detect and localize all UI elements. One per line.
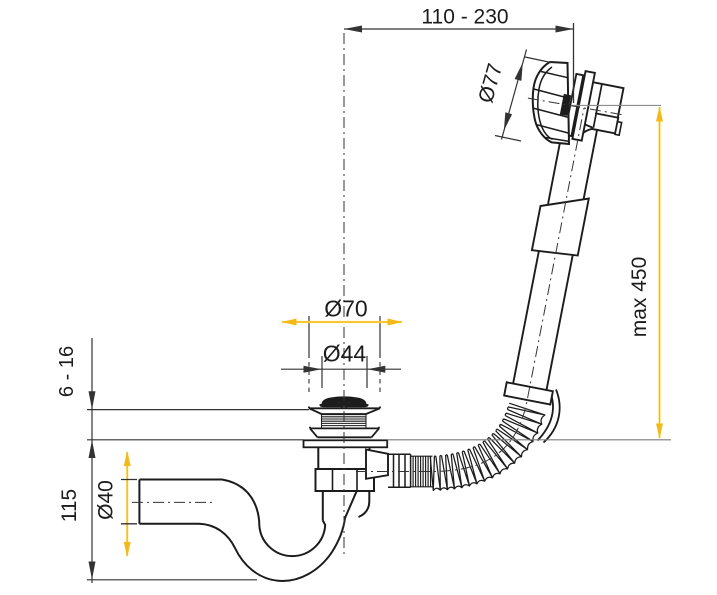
svg-text:Ø44: Ø44 (323, 341, 367, 367)
svg-text:110 - 230: 110 - 230 (421, 6, 508, 29)
svg-text:115: 115 (58, 489, 81, 522)
svg-text:Ø40: Ø40 (95, 480, 118, 520)
svg-text:6 - 16: 6 - 16 (56, 346, 78, 397)
svg-text:Ø70: Ø70 (324, 296, 367, 322)
svg-text:max 450: max 450 (628, 257, 651, 338)
